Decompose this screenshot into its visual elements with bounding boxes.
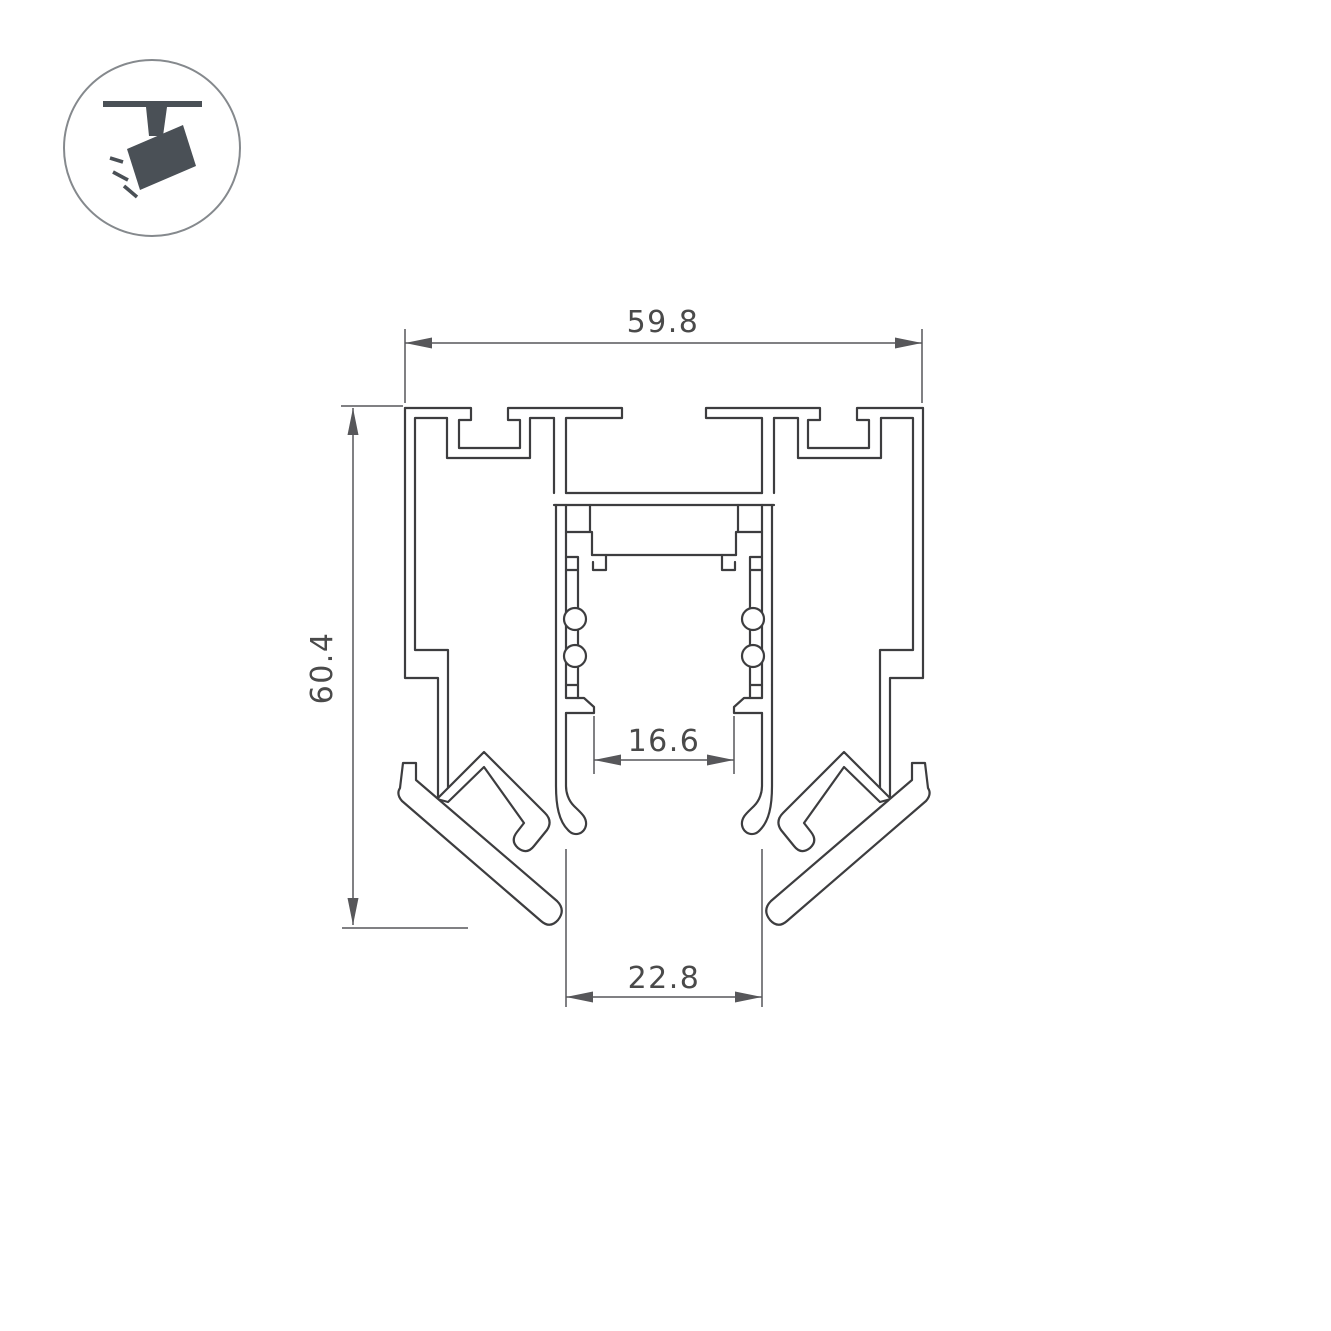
profile-left-half [398,408,622,925]
dimension-bottom-width: 22.8 [566,849,762,1007]
conductor-contact [564,608,586,630]
corner-wing-flange [398,763,561,925]
dimension-track-opening: 16.6 [594,716,734,774]
ceiling-spotlight-icon [64,60,240,236]
dimension-label-bottom-width: 22.8 [628,961,701,996]
dimension-label-left-height: 60.4 [305,632,340,705]
dimension-label-top-width: 59.8 [627,305,700,340]
drawing-page: 59.8 60.4 16.6 22.8 [0,0,1331,1331]
profile-cross-section-drawing: 59.8 60.4 16.6 22.8 [0,0,1331,1331]
icon-ceiling-bar [103,101,202,107]
profile-center-webs [554,493,774,555]
profile-right-half [706,408,930,925]
dimension-top-width: 59.8 [405,305,922,403]
dimension-label-track-opening: 16.6 [628,724,701,759]
conductor-contact [564,645,586,667]
dimension-left-height: 60.4 [305,406,468,928]
